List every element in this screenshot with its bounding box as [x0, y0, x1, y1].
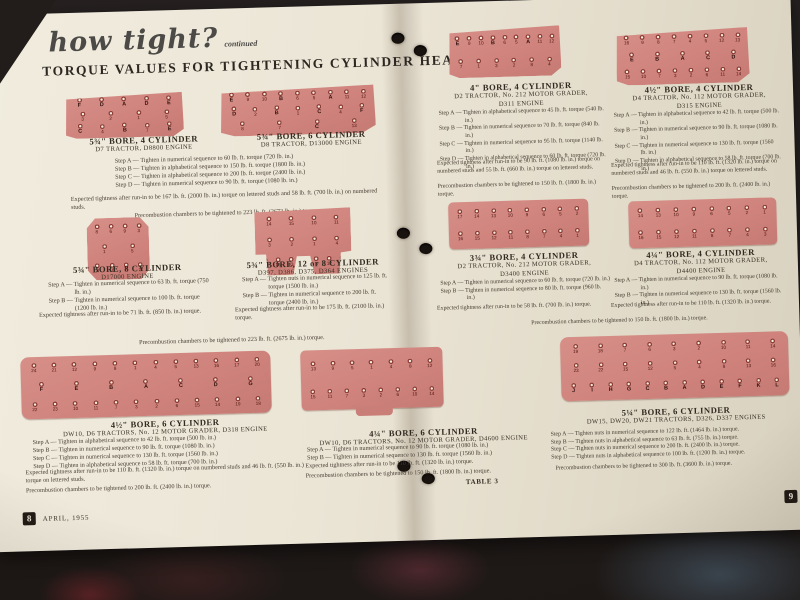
bolt-label: 3	[81, 117, 84, 122]
bolt-marker: 4	[745, 227, 750, 238]
bolt-marker: 6	[395, 387, 400, 398]
bolt-label: 19	[235, 403, 240, 408]
bolt-marker: A	[680, 51, 685, 63]
bolt-hole-icon	[295, 105, 300, 110]
bolt-marker: 7	[113, 400, 118, 411]
bolt-label: 13	[746, 364, 751, 369]
bolt-label: 16	[214, 364, 219, 369]
cylinder-head-diagram-d311: E910B65A1112713284	[448, 25, 561, 78]
bolt-label: 10	[508, 214, 513, 219]
bolt-row: 14131096521	[631, 205, 773, 220]
bolt-label: 6	[503, 41, 506, 46]
bolt-label: 22	[598, 368, 603, 373]
bolt-label: A	[681, 57, 685, 63]
bolt-hole-icon	[229, 92, 234, 97]
bolt-label: 2	[697, 346, 700, 351]
bolt-label: B	[109, 386, 113, 392]
bolt-marker: D	[144, 96, 149, 108]
bolt-marker: 8	[408, 358, 413, 369]
bolt-label: 15	[310, 395, 315, 400]
bolt-label: 11	[508, 236, 513, 241]
bolt-label: 3	[135, 405, 138, 410]
bolt-marker: C	[645, 381, 650, 393]
bolt-marker: 6	[647, 341, 652, 352]
bolt-marker: 16	[624, 35, 629, 46]
bolt-marker: 7	[458, 59, 463, 70]
bolt-label: 8	[723, 365, 726, 370]
bolt-row: EBACD	[619, 49, 746, 64]
issue-date: APRIL, 1955	[43, 514, 90, 523]
bolt-label: E	[167, 101, 171, 107]
section-heading-s11: 5¼" BORE, 6 CYLINDER DW15, DW20, DW21 TR…	[556, 403, 796, 428]
bolt-marker: 8	[529, 57, 534, 68]
bolt-marker: 13	[193, 359, 198, 370]
bolt-label: 12	[72, 368, 77, 373]
bolt-marker: C	[314, 119, 319, 131]
bolt-label: 10	[673, 213, 678, 218]
bolt-marker: 5	[173, 359, 178, 370]
bolt-marker: E	[719, 379, 724, 391]
bolt-row: 3214	[258, 235, 348, 248]
bolt-marker: G	[248, 376, 253, 388]
bolt-marker: 5	[311, 90, 316, 101]
bolt-label: 2	[254, 112, 257, 117]
bolt-row: E910B65A1112	[223, 88, 372, 104]
bolt-marker: 7	[344, 388, 349, 399]
bolt-label: D	[232, 113, 236, 119]
bolt-marker: 8	[656, 35, 661, 46]
bolt-marker: F	[737, 378, 742, 390]
bolt-label: 13	[194, 365, 199, 370]
bolt-marker: 8	[709, 228, 714, 239]
bolt-label: 23	[574, 369, 579, 374]
bolt-label: E	[168, 128, 172, 134]
bolt-label: 5	[174, 365, 177, 370]
bolt-row: FEBACDG	[24, 376, 268, 394]
bolt-marker: 2	[289, 236, 294, 247]
bolt-label: H	[609, 388, 613, 394]
bolt-label: F	[78, 104, 81, 109]
bolt-marker: 10	[673, 207, 678, 218]
expected-tightness-note: Expected tightness after run-in to be 17…	[235, 302, 395, 323]
bolt-marker: 4	[334, 235, 339, 246]
bolt-marker: 11	[745, 339, 750, 350]
bolt-label: 12	[361, 95, 366, 100]
bolt-marker: F	[39, 382, 44, 394]
bolt-label: 2	[513, 64, 516, 69]
bolt-marker: 14	[770, 338, 775, 349]
bolt-marker: 15	[625, 70, 630, 81]
bolt-marker: 2	[511, 58, 516, 69]
bolt-marker: 10	[412, 386, 417, 397]
bolt-label: 5	[131, 249, 134, 254]
bolt-marker: 4	[153, 360, 158, 371]
bolt-label: E	[630, 58, 634, 64]
bolt-marker: 7	[277, 120, 282, 131]
bolt-row: 22231011732615141918	[24, 396, 268, 413]
bolt-marker: 3	[672, 341, 677, 352]
bolt-marker: 16	[214, 358, 219, 369]
bolt-marker: 9	[92, 362, 97, 373]
bolt-marker: 10	[508, 208, 513, 219]
bolt-marker: 3	[763, 227, 768, 238]
bolt-label: D	[214, 383, 218, 389]
bolt-marker: 8	[240, 121, 245, 132]
article-header: how tight?continued	[48, 22, 258, 59]
bolt-marker: 1	[133, 360, 138, 371]
section-heading-s7: 4" BORE, 4 CYLINDER D2 TRACTOR, No. 212 …	[440, 79, 603, 110]
bolt-marker: 5	[514, 35, 519, 46]
bolt-label: B	[655, 57, 659, 63]
bolt-marker: 7	[622, 342, 627, 353]
bolt-label: D	[701, 385, 705, 391]
bolt-label: 14	[215, 403, 220, 408]
bolt-label: 6	[396, 393, 399, 398]
bolt-label: 2	[576, 212, 579, 217]
bolt-marker: C	[705, 50, 710, 62]
bolt-marker: 10	[478, 36, 483, 47]
bolt-marker: 7	[671, 34, 676, 45]
bolt-marker: H	[608, 382, 613, 394]
bolt-hole-icon	[289, 236, 294, 241]
bolt-label: 9	[468, 42, 471, 47]
bolt-label: 16	[624, 41, 629, 46]
bolt-marker: A	[682, 380, 687, 392]
bolt-marker: 6	[709, 206, 714, 217]
bolt-label: 2	[155, 405, 158, 410]
bolt-label: B	[664, 386, 668, 392]
bolt-marker: 8	[721, 359, 726, 370]
bolt-marker: 8	[525, 229, 530, 240]
bolt-label: E	[720, 385, 724, 391]
bolt-label: 1	[763, 211, 766, 216]
bolt-label: 8	[95, 231, 98, 236]
bolt-label: 7	[146, 129, 149, 134]
bolt-marker: B	[122, 123, 127, 135]
bolt-label: 13	[656, 214, 661, 219]
bolt-marker: 3	[673, 68, 678, 79]
bolt-hole-icon	[622, 342, 627, 347]
bolt-marker: 4	[687, 34, 692, 45]
bolt-marker: 1	[762, 205, 767, 216]
bolt-marker: G	[626, 381, 631, 393]
bolt-marker: 23	[573, 363, 578, 374]
bolt-marker: 2	[696, 340, 701, 351]
bolt-label: 2	[379, 393, 382, 398]
bolt-row: 139514812	[303, 357, 439, 371]
bolt-label: D	[100, 103, 104, 109]
section-heading-s2: 5¾" BORE, 6 CYLINDER D8 TRACTOR, D13000 …	[241, 128, 381, 150]
bolt-label: 1	[103, 250, 106, 255]
bolt-label: 8	[657, 41, 660, 46]
bolt-marker: 15	[289, 216, 294, 227]
bolt-label: A	[683, 386, 687, 392]
bolt-marker: 12	[361, 89, 366, 100]
bolt-marker: 8	[94, 225, 99, 236]
bolt-label: C	[78, 130, 82, 136]
bolt-marker: J	[571, 383, 576, 395]
bolt-label: 7	[673, 40, 676, 45]
bolt-marker: 5	[703, 33, 708, 44]
bolt-marker: 7	[145, 123, 150, 134]
bolt-row: 161512118741	[452, 228, 586, 242]
precombustion-note: Precombustion chambers to be tightened t…	[77, 332, 387, 349]
bolt-label: 7	[115, 406, 118, 411]
bolt-marker: 10	[262, 92, 267, 103]
bolt-row: 171413109652	[451, 206, 585, 220]
bolt-label: B	[123, 129, 127, 135]
bolt-label: 14	[736, 73, 741, 78]
bolt-marker: 7	[657, 69, 662, 80]
bolt-label: 4	[154, 366, 157, 371]
bolt-marker: 12	[719, 33, 724, 44]
bolt-marker: 1	[369, 359, 374, 370]
bolt-label: 11	[93, 406, 98, 411]
bolt-label: 7	[346, 394, 349, 399]
bolt-row: 151073261114	[619, 66, 746, 80]
bolt-marker: 12	[72, 362, 77, 373]
bolt-label: 5	[559, 213, 562, 218]
bolt-label: 1	[313, 242, 316, 247]
bolt-label: 5	[728, 212, 731, 217]
bolt-label: A	[329, 95, 333, 101]
bolt-marker: 1	[102, 244, 107, 255]
bolt-label: C	[317, 110, 321, 116]
bolt-row: 3215	[68, 109, 180, 123]
bolt-label: 12	[549, 40, 554, 45]
bolt-marker: 4	[697, 360, 702, 371]
bolt-marker: 9	[524, 208, 529, 219]
bolt-marker: 9	[467, 36, 472, 47]
bolt-label: 5	[351, 366, 354, 371]
bolt-label: 2	[291, 242, 294, 247]
bolt-marker: F	[77, 98, 82, 110]
bolt-marker: 9	[245, 92, 250, 103]
bolt-label: C	[646, 387, 650, 393]
bolt-label: 4	[746, 233, 749, 238]
bolt-label: F	[738, 384, 741, 389]
bolt-label: 7	[728, 234, 731, 239]
bolt-label: 11	[345, 95, 350, 100]
bolt-label: 1	[370, 365, 373, 370]
torque-steps-s9: Step A — Tighten in numerical sequence t…	[440, 276, 611, 304]
bolt-marker: 11	[334, 215, 339, 226]
bolt-marker: 2	[378, 387, 383, 398]
bolt-marker: 12	[491, 230, 496, 241]
bolt-label: 6	[542, 213, 545, 218]
bolt-hole-icon	[328, 89, 333, 94]
bolt-label: 20	[255, 363, 260, 368]
bolt-row: 161512118743	[632, 226, 774, 241]
bolt-row: 14151011	[257, 214, 347, 227]
bolt-label: 13	[735, 38, 740, 43]
bolt-marker: 11	[327, 388, 332, 399]
bolt-marker: 14	[215, 397, 220, 408]
bolt-marker: 16	[638, 230, 643, 241]
bolt-marker: 14	[266, 216, 271, 227]
table-label: TABLE 3	[466, 477, 499, 486]
bolt-label: 3	[363, 394, 366, 399]
bolt-marker: 9	[640, 35, 645, 46]
bolt-label: 10	[262, 98, 267, 103]
bolt-marker: 18	[256, 396, 261, 407]
bolt-label: 4	[548, 63, 551, 68]
bolt-label: 3	[137, 229, 140, 234]
bolt-marker: 12	[549, 34, 554, 45]
bolt-hole-icon	[573, 343, 578, 348]
bolt-label: 14	[638, 214, 643, 219]
bolt-marker: A	[121, 96, 126, 108]
bolt-row: 713284	[452, 57, 558, 71]
bolt-label: 15	[195, 404, 200, 409]
bolt-marker: 16	[771, 358, 776, 369]
bolt-marker: C	[317, 104, 322, 116]
bolt-label: 7	[658, 75, 661, 80]
bolt-marker: E	[229, 92, 234, 104]
bolt-hole-icon	[647, 341, 652, 346]
bolt-marker: 4	[338, 104, 343, 115]
bolt-label: G	[248, 382, 252, 388]
bolt-marker: E	[629, 52, 634, 64]
bolt-label: 11	[334, 221, 339, 226]
bolt-marker: B	[490, 35, 495, 47]
bolt-marker: 6	[174, 398, 179, 409]
bolt-marker: 15	[656, 229, 661, 240]
bolt-label: 14	[770, 344, 775, 349]
bolt-label: E	[456, 42, 460, 48]
bolt-label: 7	[460, 65, 463, 70]
bolt-marker: 1	[476, 59, 481, 70]
bolt-marker: D	[700, 379, 705, 391]
bolt-marker: 14	[429, 386, 434, 397]
bolt-marker: 10	[73, 401, 78, 412]
bolt-label: 11	[328, 394, 333, 399]
bolt-marker: 4	[547, 57, 552, 68]
bolt-label: 9	[526, 214, 529, 219]
bolt-label: 18	[598, 349, 603, 354]
bolt-marker: 24	[31, 363, 36, 374]
bolt-label: 9	[94, 368, 97, 373]
bolt-marker: 6	[295, 91, 300, 102]
cylinder-head-diagram-d4400: 14131096521161512118743	[628, 197, 777, 248]
bolt-label: 1	[297, 111, 300, 116]
bolt-marker: 21	[51, 363, 56, 374]
cylinder-head-diagram-d3400: 171413109652161512118741	[448, 199, 589, 250]
bolt-marker: 6	[704, 67, 709, 78]
bolt-label: 4	[390, 365, 393, 370]
bolt-marker: 18	[598, 343, 603, 354]
bolt-marker: 3	[134, 399, 139, 410]
bolt-marker: 13	[491, 209, 496, 220]
bolt-marker: 3	[267, 237, 272, 248]
bolt-marker: 15	[194, 398, 199, 409]
bolt-label: 3	[268, 243, 271, 248]
bolt-marker: 7	[727, 227, 732, 238]
bolt-label: 1	[576, 234, 579, 239]
bolt-row: 15	[90, 243, 146, 255]
bolt-label: 14	[429, 392, 434, 397]
bolt-marker: 23	[52, 402, 57, 413]
bolt-marker: 6	[502, 35, 507, 46]
bolt-marker: 3	[361, 388, 366, 399]
script-continued-label: continued	[224, 39, 257, 49]
bolt-label: 16	[638, 236, 643, 241]
bolt-label: K	[757, 384, 761, 390]
bolt-marker: 1	[136, 110, 141, 121]
bolt-marker: 15	[310, 389, 315, 400]
bolt-marker: 19	[235, 397, 240, 408]
bolt-label: 10	[641, 75, 646, 80]
bolt-marker: 13	[735, 32, 740, 43]
bolt-label: 6	[648, 347, 651, 352]
bolt-label: 8	[530, 63, 533, 68]
bolt-marker: 5	[558, 207, 563, 218]
bolt-label: 6	[710, 213, 713, 218]
bolt-label: J	[572, 389, 575, 394]
bolt-marker: K	[756, 378, 761, 390]
bolt-hole-icon	[721, 339, 726, 344]
bolt-marker: 11	[692, 228, 697, 239]
bolt-label: 10	[412, 392, 417, 397]
bolt-marker: 12	[427, 358, 432, 369]
bolt-label: 1	[477, 65, 480, 70]
bolt-marker: 14	[638, 208, 643, 219]
bolt-row: 232215125481316	[564, 357, 786, 374]
bolt-label: 12	[492, 236, 497, 241]
bolt-label: B	[275, 111, 279, 117]
bolt-label: 8	[711, 234, 714, 239]
bolt-label: 18	[256, 402, 261, 407]
bolt-label: D	[145, 102, 149, 108]
bolt-label: 15	[475, 237, 480, 242]
bolt-marker: 22	[598, 362, 603, 373]
bolt-marker: 13	[311, 361, 316, 372]
bolt-label: G	[627, 387, 631, 393]
bolt-label: 7	[624, 348, 627, 353]
bolt-label: 11	[537, 40, 542, 45]
bolt-label: 4	[698, 366, 701, 371]
bolt-label: 6	[176, 404, 179, 409]
bolt-marker: D	[99, 97, 104, 109]
bolt-label: 9	[693, 213, 696, 218]
bolt-label: 4	[101, 130, 104, 135]
bolt-marker: B	[274, 105, 279, 117]
bolt-label: C	[179, 384, 183, 390]
bolt-label: 4	[336, 241, 339, 246]
bolt-marker: A	[525, 34, 530, 46]
binder-hole	[419, 243, 432, 254]
bolt-marker: I	[589, 382, 594, 394]
bolt-label: 8	[114, 367, 117, 372]
bolt-marker: 14	[474, 209, 479, 220]
bolt-marker: E	[74, 381, 79, 393]
bolt-row: FDADE	[68, 95, 180, 110]
bolt-label: 4	[560, 234, 563, 239]
bolt-marker: L	[774, 377, 779, 389]
bolt-marker: 15	[475, 231, 480, 242]
section-heading-s1: 5¾" BORE, 4 CYLINDER D7 TRACTOR, D8800 E…	[51, 132, 236, 156]
bolt-label: A	[144, 385, 148, 391]
manual-spread: how tight?continued TORQUE VALUES FOR TI…	[0, 0, 800, 552]
bolt-marker: A	[328, 89, 333, 101]
bolt-marker: D	[231, 107, 236, 119]
bolt-label: 1	[134, 366, 137, 371]
bolt-label: C	[706, 56, 710, 62]
bolt-marker: 11	[344, 89, 349, 100]
bolt-label: 9	[332, 366, 335, 371]
bolt-label: 10	[73, 407, 78, 412]
bolt-marker: B	[655, 51, 660, 63]
